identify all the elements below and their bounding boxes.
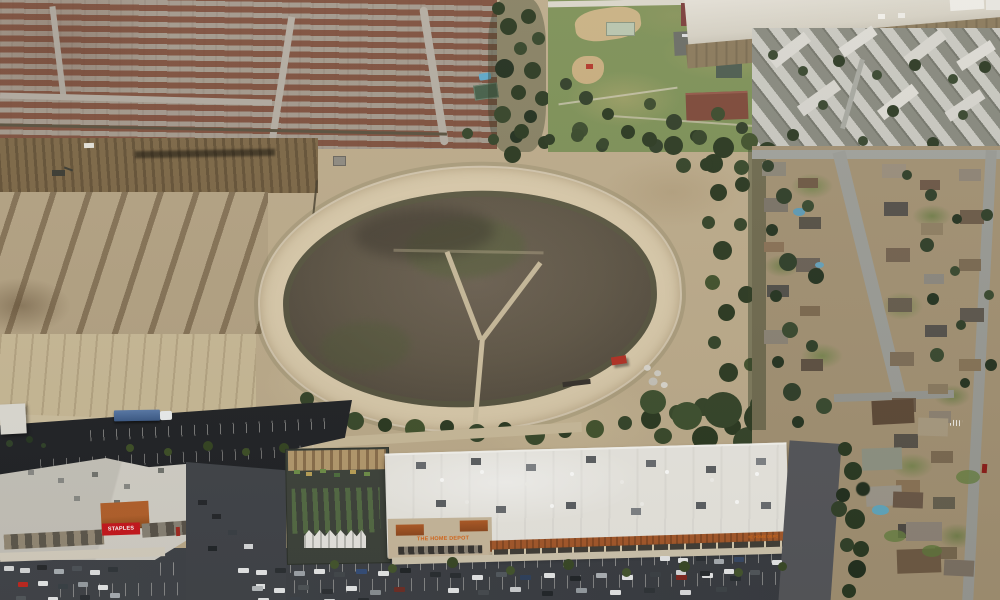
hedge-tree-line (838, 442, 852, 456)
home-depot-hvac-units (416, 462, 426, 469)
entrance-awning (460, 520, 488, 531)
white-truck (84, 143, 94, 148)
house-roof-large (944, 559, 975, 577)
lawn-patch (922, 545, 942, 557)
semi-truck-trailer (114, 410, 160, 422)
tree-row (492, 2, 505, 15)
neighborhood-trees-east (902, 170, 912, 180)
crosswalk (950, 420, 962, 427)
parked-cars-row (430, 572, 441, 577)
park-shelter (606, 22, 635, 36)
park-trees (560, 78, 572, 90)
red-service-door (176, 527, 180, 536)
house-roof-large (862, 447, 903, 470)
red-car (982, 464, 988, 473)
drive-aisle (186, 462, 286, 600)
parked-cars-row (660, 556, 670, 561)
trees-track-northeast (642, 132, 657, 147)
house-roof-large (918, 417, 949, 436)
house-roof-large (906, 522, 942, 541)
backyard-pool (815, 262, 824, 268)
parking-lot-trees (330, 560, 339, 569)
home-depot-sign-right: THE HOME DEPOT (748, 533, 778, 540)
staples-roof-units (28, 470, 34, 475)
trees-track-southeast (640, 390, 666, 414)
house-roof-large (893, 491, 924, 508)
parked-cars-row (238, 568, 249, 573)
lawn-patch (884, 530, 906, 542)
aerial-photo-scene: STAPLES THE HOME DEPOT THE HOME DEPOT (0, 0, 1000, 600)
neighborhood-west-hedge (748, 150, 766, 430)
home-depot-roof-vents (440, 478, 444, 482)
rubble-windrows (0, 192, 268, 334)
backyard-pool-kidney (872, 505, 889, 515)
garden-plant-rows (292, 487, 381, 534)
excavator (52, 170, 65, 176)
garden-merchandise (294, 470, 300, 474)
semi-truck-cab (160, 411, 172, 420)
levee-white-object (898, 13, 905, 18)
apartment-trees (768, 50, 778, 60)
home-depot-sign: THE HOME DEPOT (412, 533, 474, 543)
garden-lumber-racks (288, 449, 386, 471)
track-shed (333, 156, 346, 166)
lawn-patch (956, 470, 980, 484)
park-building (686, 91, 749, 121)
trees-track-top (462, 128, 473, 139)
trees-track-east (700, 158, 713, 171)
oval-dirt-track (251, 155, 688, 443)
black-lot-trees (126, 444, 134, 452)
park-play-structure (586, 64, 593, 69)
home-depot-entrance: THE HOME DEPOT (388, 517, 493, 559)
staples-sign: STAPLES (102, 522, 140, 535)
white-building-corner (0, 403, 27, 434)
street-top (752, 150, 1000, 159)
levee-white-object (878, 14, 885, 19)
industrial-roof (986, 0, 1000, 10)
rear-alley (778, 440, 841, 600)
palm-trees (6, 440, 13, 447)
white-rubble-pile (644, 365, 651, 371)
house-roof-large (871, 399, 914, 425)
backyard-pool (793, 208, 805, 216)
neighborhood-trees-west (762, 160, 774, 172)
staples-parked-cars (4, 566, 14, 571)
entrance-doors (398, 545, 482, 554)
aisle-cars (198, 500, 207, 505)
